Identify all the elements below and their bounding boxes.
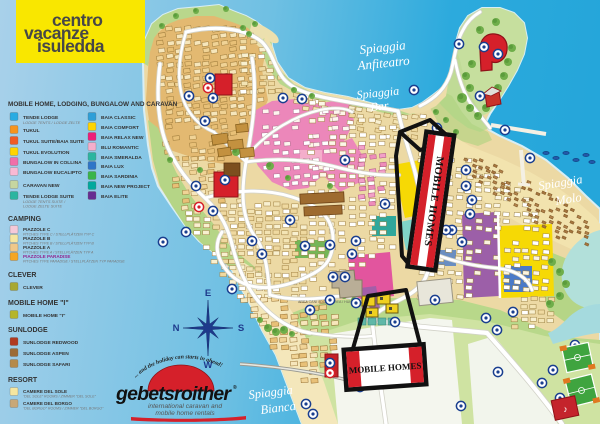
svg-text:BAIA NEW PROJECT: BAIA NEW PROJECT — [101, 184, 150, 190]
svg-text:BAIA CLASSIC: BAIA CLASSIC — [101, 115, 136, 121]
svg-text:CAMERE DEL SOLE: CAMERE DEL SOLE — [23, 389, 67, 394]
svg-text:PIAZZOLE A: PIAZZOLE A — [23, 245, 51, 250]
svg-text:"DEL SOLE" ROOMS / ZIMMER "DEL: "DEL SOLE" ROOMS / ZIMMER "DEL SOLE" — [23, 395, 97, 399]
svg-text:MOBILE HOME, LODGING, BUNGALOW: MOBILE HOME, LODGING, BUNGALOW AND CARAV… — [8, 101, 178, 108]
svg-text:CAMERE DEL BORGO: CAMERE DEL BORGO — [23, 401, 72, 406]
svg-text:CLEVER: CLEVER — [8, 272, 36, 279]
svg-text:MOBILE HOME "I": MOBILE HOME "I" — [23, 313, 65, 319]
svg-text:SUNLODGE: SUNLODGE — [8, 327, 48, 334]
svg-text:TUKUL SUITE/BAIA SUITE: TUKUL SUITE/BAIA SUITE — [23, 139, 85, 145]
svg-text:MOBILE HOME "I": MOBILE HOME "I" — [8, 300, 69, 307]
svg-text:LODGE TENTS / LODGE ZELTE: LODGE TENTS / LODGE ZELTE — [23, 120, 81, 125]
svg-text:PIAZZOLE B: PIAZZOLE B — [23, 236, 51, 241]
svg-text:BAIA ELITE: BAIA ELITE — [101, 194, 129, 200]
svg-text:international caravan and: international caravan and — [148, 403, 222, 410]
svg-text:BAIA SARDINIA: BAIA SARDINIA — [101, 174, 138, 180]
svg-text:LODGE ZELTE SUITE: LODGE ZELTE SUITE — [23, 203, 62, 208]
svg-text:isuledda: isuledda — [37, 36, 105, 56]
svg-text:PITCHES TYPE PARADISE / STELLP: PITCHES TYPE PARADISE / STELLPLÄTZEN TYP… — [23, 260, 125, 264]
svg-text:BUNGALOW EUCALIPTO: BUNGALOW EUCALIPTO — [23, 170, 82, 176]
svg-text:RESORT: RESORT — [8, 377, 38, 384]
svg-text:mobile home rentals: mobile home rentals — [155, 410, 215, 417]
svg-text:CLEVER: CLEVER — [23, 285, 43, 291]
svg-text:Bar: Bar — [370, 98, 390, 114]
svg-text:BLU ROMANTIC: BLU ROMANTIC — [101, 145, 139, 151]
svg-text:S: S — [238, 323, 244, 334]
svg-text:SUNLODGE REDWOOD: SUNLODGE REDWOOD — [23, 340, 79, 346]
svg-text:CAMPING: CAMPING — [8, 216, 42, 223]
svg-text:TUKUL EVOLUTION: TUKUL EVOLUTION — [23, 150, 70, 156]
svg-text:BAIA SMERALDA: BAIA SMERALDA — [101, 155, 142, 161]
svg-text:gebetsroither: gebetsroither — [115, 383, 232, 405]
svg-text:PIAZZOLE C: PIAZZOLE C — [23, 227, 51, 232]
svg-text:SUNLODGE SAFARI: SUNLODGE SAFARI — [23, 362, 71, 368]
svg-text:CARAVAN NEW: CARAVAN NEW — [23, 183, 60, 189]
svg-text:N: N — [173, 323, 180, 334]
svg-text:BAIA COMFORT: BAIA COMFORT — [101, 125, 139, 131]
svg-text:"DEL BORGO" ROOMS / ZIMMER "DE: "DEL BORGO" ROOMS / ZIMMER "DEL BORGO" — [23, 407, 104, 411]
svg-text:E: E — [205, 288, 211, 299]
svg-text:PIAZZOLE PARADISE: PIAZZOLE PARADISE — [23, 254, 70, 259]
svg-text:BAIA LUX: BAIA LUX — [101, 164, 125, 170]
svg-text:BUNGALOW IN COLLINA: BUNGALOW IN COLLINA — [23, 160, 82, 166]
svg-text:SUNLODGE ASPEN: SUNLODGE ASPEN — [23, 351, 69, 357]
svg-text:TUKUL: TUKUL — [23, 128, 40, 134]
svg-text:BAIA RELAX NEW: BAIA RELAX NEW — [101, 135, 144, 141]
svg-text:®: ® — [233, 384, 237, 391]
